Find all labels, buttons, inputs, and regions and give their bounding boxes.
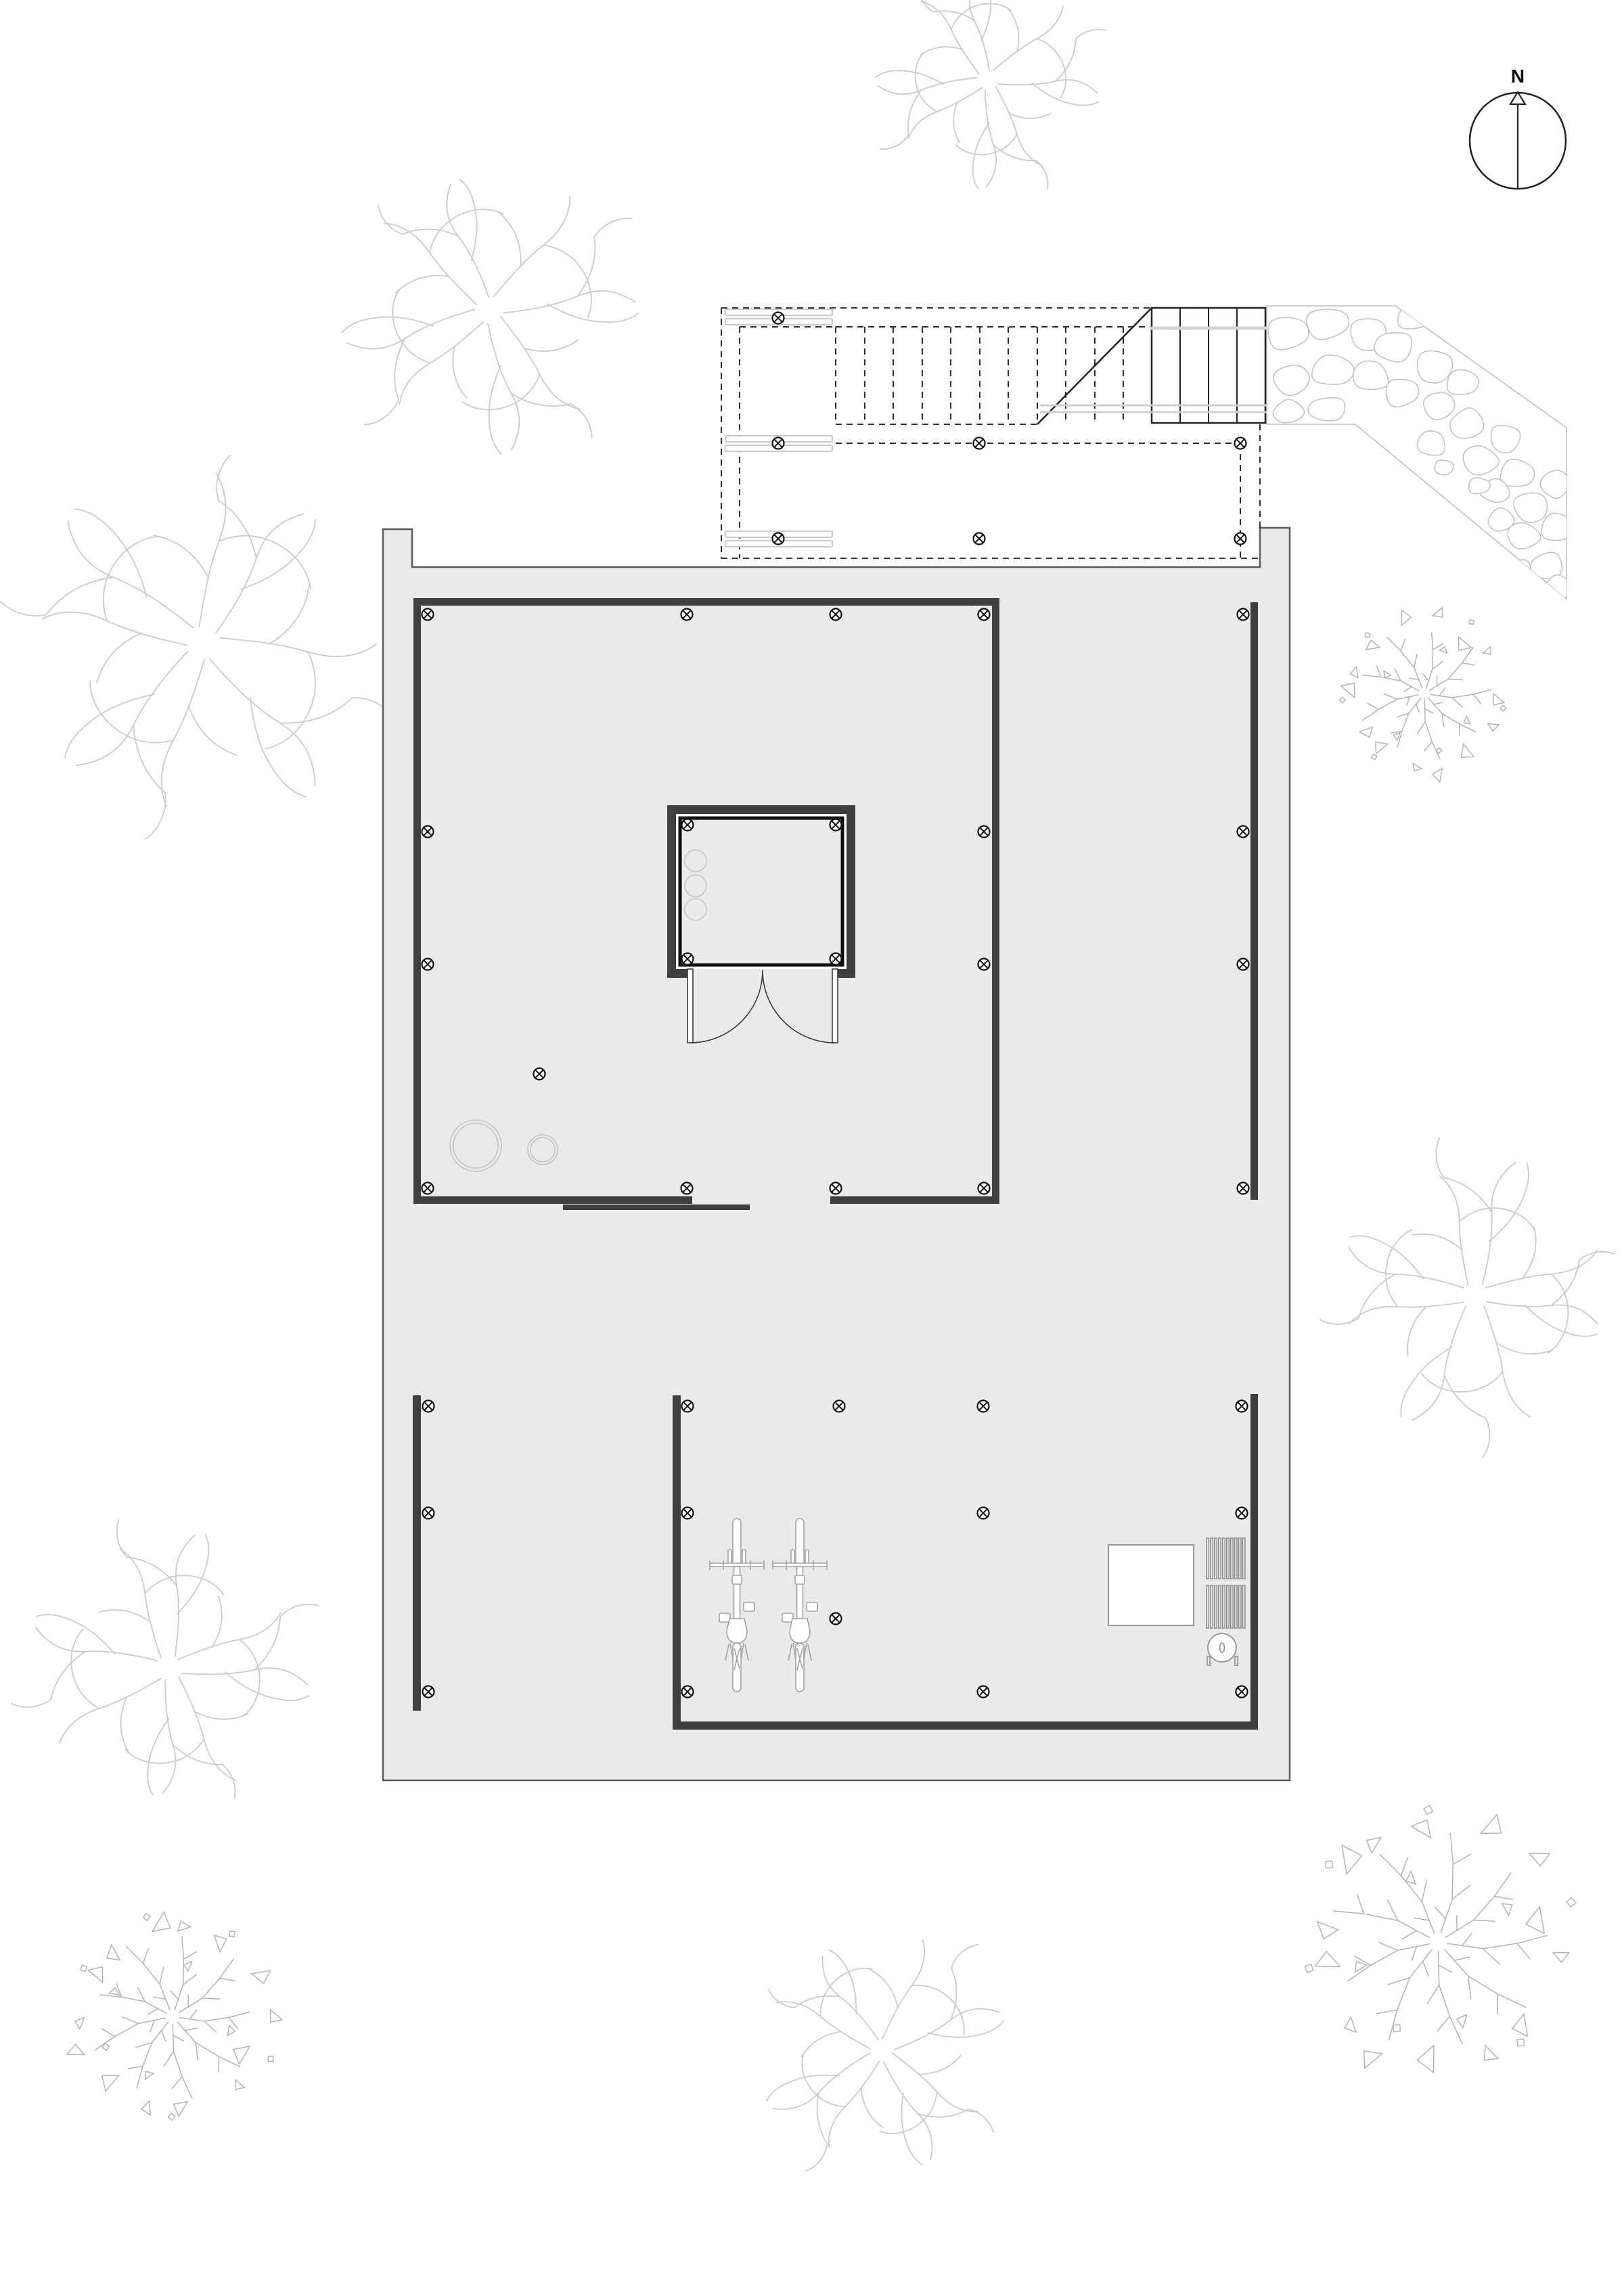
column-symbol (1235, 438, 1246, 449)
column-symbol (1238, 1183, 1249, 1194)
boundary-wall-upper (1250, 602, 1258, 1200)
column-symbol (682, 819, 694, 831)
tree-branchy (1276, 1099, 1624, 1490)
column-symbol (422, 959, 434, 970)
stone (1447, 370, 1479, 395)
column-symbol (830, 953, 842, 965)
site-plan-page: N (0, 0, 1624, 2296)
column-symbol (978, 1508, 989, 1519)
column-symbol (423, 1508, 434, 1519)
hall-north-wall (413, 598, 999, 606)
stone (1469, 478, 1490, 493)
boundary-wall-lower (1250, 1394, 1258, 1730)
stone (1502, 560, 1531, 582)
tree-branchy (0, 1481, 353, 1850)
column-symbol (422, 609, 434, 621)
hall-south-wall-offset (563, 1205, 750, 1210)
column-symbol (682, 1508, 694, 1519)
north-label: N (1511, 66, 1525, 87)
equipment-pad (1108, 1545, 1194, 1625)
column-symbol (978, 609, 990, 621)
column-symbol (423, 1686, 434, 1698)
column-symbol (834, 1401, 845, 1412)
column-symbol (773, 533, 784, 545)
tree-branchy (727, 1897, 1037, 2209)
stone (1541, 514, 1573, 541)
lower-west-wall (413, 1395, 421, 1711)
tree-conifer (44, 1892, 298, 2136)
column-symbol (1236, 1686, 1248, 1698)
column-symbol (978, 1686, 989, 1698)
column-symbol (830, 609, 842, 621)
column-symbol (773, 313, 784, 324)
column-symbol (1238, 959, 1249, 970)
lower-middle-wall (673, 1395, 681, 1730)
tree-conifer (1338, 606, 1506, 783)
column-symbol (978, 1183, 990, 1194)
hall-south-wall-left (413, 1196, 692, 1204)
wooden-deck (721, 308, 1267, 558)
door-leaf-right (832, 969, 838, 1043)
hall-west-wall (413, 598, 421, 1204)
column-symbol (422, 1183, 434, 1194)
column-symbol (1235, 533, 1246, 545)
door-leaf-left (687, 969, 693, 1043)
column-symbol (830, 819, 842, 831)
tree-branchy (340, 162, 639, 464)
column-symbol (682, 953, 694, 965)
stone (1418, 431, 1445, 455)
deck-sleepers (725, 309, 832, 547)
column-symbol (978, 1401, 989, 1412)
column-symbol (1238, 609, 1249, 621)
column-symbol (978, 826, 990, 838)
column-symbol (978, 959, 990, 970)
column-symbol (423, 1401, 434, 1412)
stone-path (1267, 306, 1573, 599)
column-symbol (682, 1401, 694, 1412)
column-symbol (534, 1068, 545, 1080)
site-plan-drawing: N (0, 0, 1624, 2296)
column-symbol (830, 1183, 842, 1194)
stone (1398, 307, 1429, 329)
column-symbol (1236, 1401, 1248, 1412)
tree-conifer (1238, 1743, 1624, 2139)
stair-run (1037, 308, 1267, 424)
lower-south-wall (673, 1721, 1258, 1730)
column-symbol (682, 1686, 694, 1698)
hall-south-wall-right (830, 1196, 999, 1204)
tree-branchy (857, 0, 1119, 214)
north-arrow: N (1470, 66, 1566, 189)
column-symbol (681, 1183, 693, 1194)
column-symbol (681, 609, 693, 621)
hall-east-wall (992, 598, 999, 1204)
column-symbol (974, 438, 985, 449)
stone (1308, 398, 1345, 421)
column-symbol (773, 438, 784, 449)
column-symbol (830, 1613, 842, 1625)
column-symbol (422, 826, 434, 838)
column-symbol (1236, 1508, 1248, 1519)
column-symbol (1238, 826, 1249, 838)
column-symbol (974, 533, 985, 545)
